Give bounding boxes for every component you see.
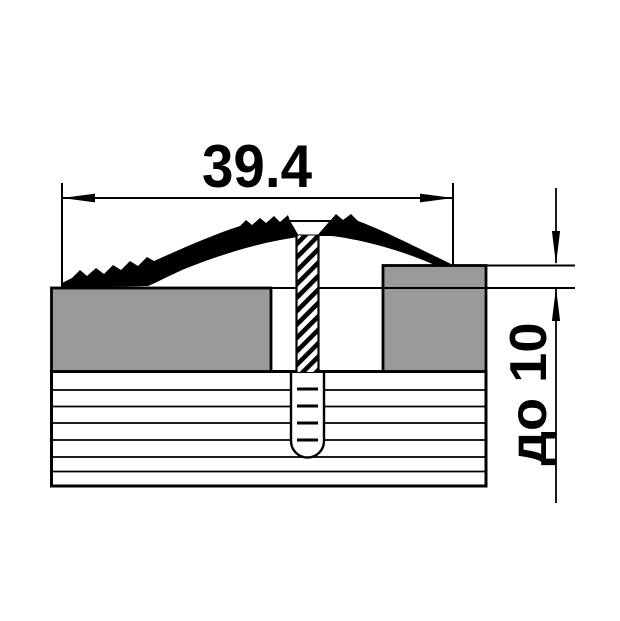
left-floor-block <box>52 288 272 372</box>
screw-hole-slot <box>291 372 324 458</box>
subfloor-body <box>52 372 487 487</box>
screw-shaft-hatching <box>297 236 319 373</box>
subfloor-base <box>52 372 487 487</box>
width-dimension-arrow-left <box>62 194 95 203</box>
threshold-profile-drawing: 39.4 до 10 <box>0 0 620 621</box>
width-dimension-arrow-right <box>420 194 453 203</box>
technical-drawing-canvas: 39.4 до 10 <box>0 0 620 621</box>
height-dimension: до 10 <box>500 188 560 503</box>
width-dimension-label: 39.4 <box>202 133 313 200</box>
height-dimension-arrow-up <box>552 288 560 322</box>
right-floor-block <box>383 266 486 372</box>
screw-shaft <box>297 236 319 373</box>
height-dimension-arrow-down <box>552 231 560 265</box>
height-dimension-label: до 10 <box>500 323 558 466</box>
